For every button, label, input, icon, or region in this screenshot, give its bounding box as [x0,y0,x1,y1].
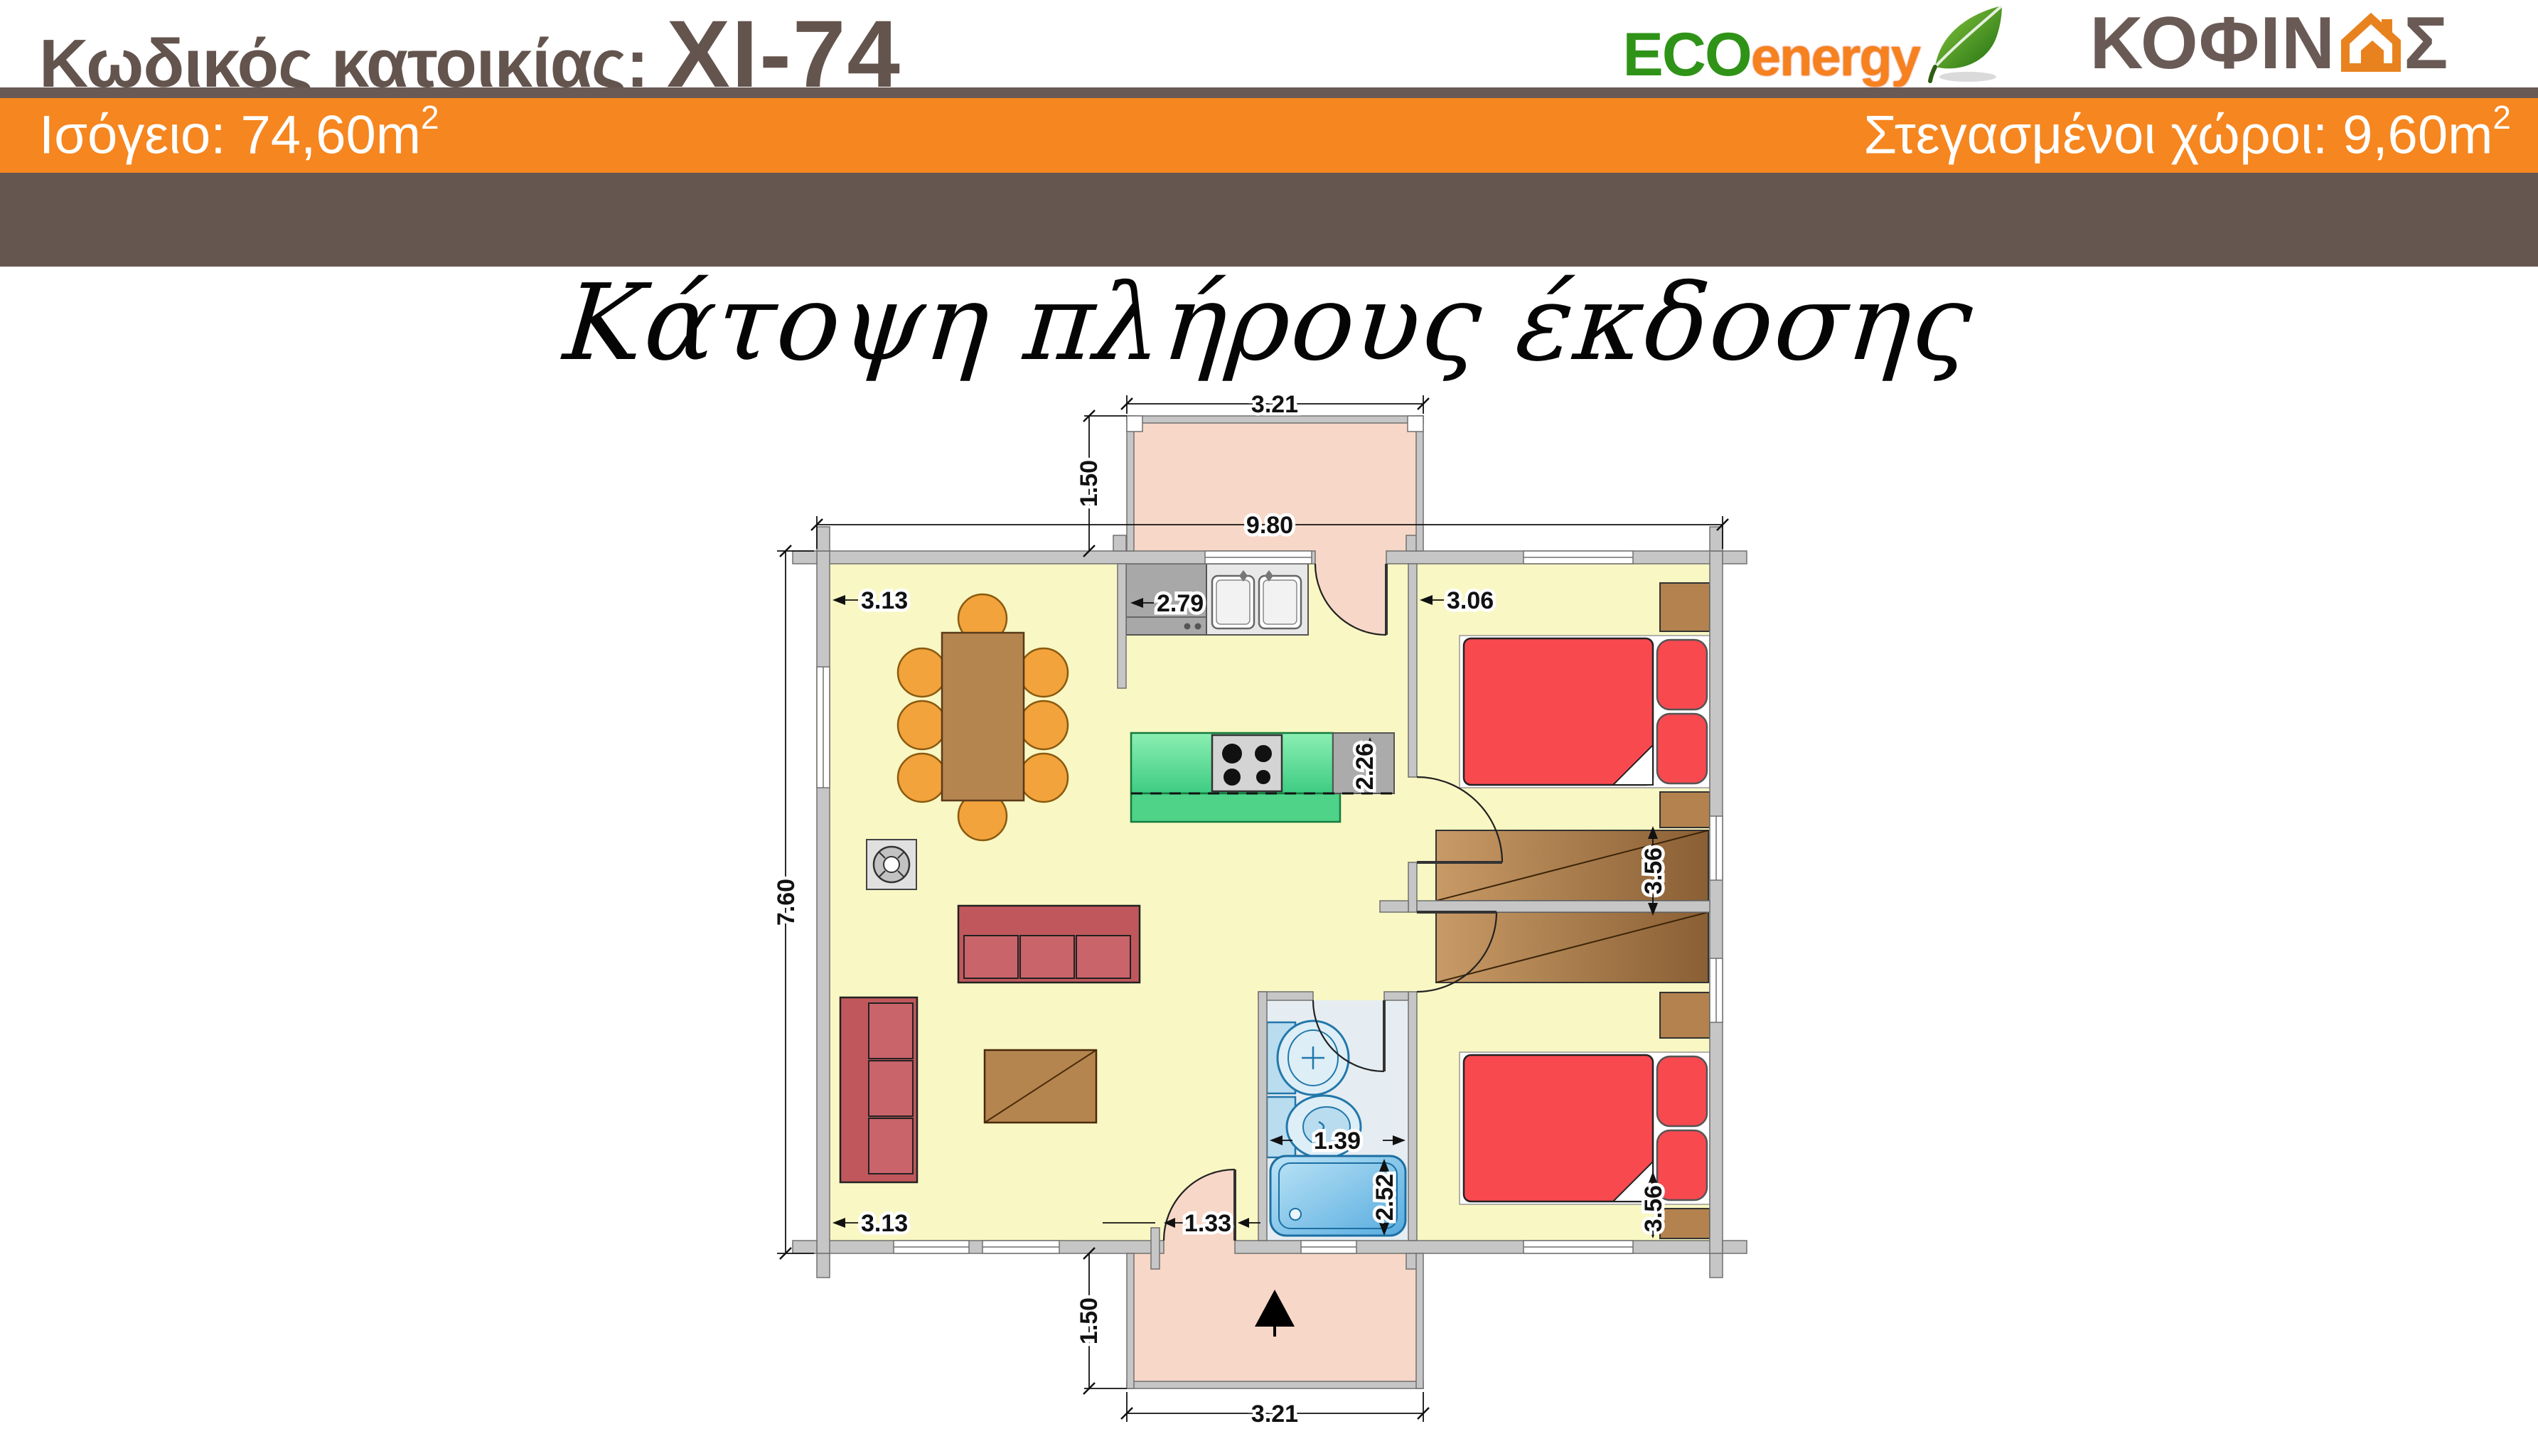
floor-plan: 3.21 1.50 9.80 7.60 3.13 3.13 2.79 3.06 … [771,390,1781,1429]
dim-living-bottom: 3.13 [861,1210,908,1237]
info-bar: Ισόγειο: 74,60m2 Στεγασμένοι χώροι: 9,60… [0,98,2538,173]
divider-stub [1380,901,1408,912]
hall-partition-mid [1408,862,1417,912]
drawing-title: Κάτοψη πλήρους έκδοσης [0,262,2538,384]
porch-top-wall-left [1127,416,1134,551]
dim-island-length: 2.26 [1351,743,1378,790]
eco-energy-logo: ECOenergy [1622,20,1919,90]
pillow [1657,1056,1707,1126]
bath-wall-left [1258,992,1267,1241]
brand-row: ΚΟΦΙΝ Σ [2090,1,2449,86]
house-icon [2334,6,2405,81]
stove-cooktop [1212,735,1282,791]
dim-porch-top-depth: 1.50 [1076,460,1103,507]
entry-top-gap [1315,551,1386,564]
dim-bath-depth: 2.52 [1371,1174,1398,1221]
dim-house-depth: 7.60 [773,879,800,926]
kitchen-stub-wall [1118,564,1126,688]
covered-area-text: Στεγασμένοι χώροι: 9,60m [1863,105,2493,165]
ground-floor-sup: 2 [421,99,439,136]
double-bed [1464,638,1653,785]
dim-living-top: 3.13 [861,587,908,614]
porch-post [1408,416,1423,432]
sofa-large [958,906,1140,983]
eco-text: ECO [1622,20,1750,90]
coffee-table [985,1050,1096,1123]
nightstand [1660,1209,1710,1238]
ground-floor-text: Ισόγειο: 74,60m [39,105,421,165]
porch-bottom-wall-left [1127,1253,1134,1388]
sofa-small [840,997,917,1182]
bedroom2-furniture [1436,912,1710,1238]
flyer-canvas: Κωδικός κατοικίας: XI-74 ECOenergy [0,0,2538,1456]
brand-prefix: ΚΟΦΙΝ [2090,1,2336,86]
porch-top-wall-right [1416,416,1423,551]
brown-band [0,173,2538,267]
dim-house-width: 9.80 [1246,512,1293,539]
energy-text: energy [1751,26,1919,88]
porch-bottom-wall-right [1416,1253,1423,1388]
dim-porch-bottom-depth: 1.50 [1076,1297,1103,1344]
covered-area-sup: 2 [2493,99,2511,136]
dim-bath-width: 1.39 [1314,1128,1361,1155]
dining-table [942,633,1024,801]
brand-suffix: Σ [2404,1,2448,86]
pillow [1657,714,1707,783]
hall-partition-bottom [1408,992,1417,1241]
dim-bedroom1-width: 3.06 [1447,587,1494,614]
hall-partition-top [1408,564,1417,777]
ground-floor-area: Ισόγειο: 74,60m2 [39,104,439,166]
separator-line [0,87,2538,98]
fireplace-stove [867,840,916,889]
dim-bedroom2-depth: 3.56 [1640,1185,1667,1232]
nightstand [1660,792,1710,828]
leaf-icon [1927,1,2010,90]
bath-wall-top-right [1384,992,1408,1000]
wall-left [817,551,830,1253]
dim-porch-bottom-width: 3.21 [1251,1401,1298,1428]
wall-right [1710,551,1723,1253]
page-title: Κωδικός κατοικίας: XI-74 [39,0,901,87]
covered-area: Στεγασμένοι χώροι: 9,60m2 [1863,104,2511,166]
bedroom-divider-wall [1417,901,1710,912]
dim-kitchen-wall: 2.79 [1157,590,1204,617]
entry-bottom-gap [1164,1241,1235,1253]
porch-post [1127,416,1142,432]
nightstand [1660,992,1710,1038]
pillow [1657,640,1707,710]
double-bed [1464,1055,1653,1201]
dim-porch-top-width: 3.21 [1251,391,1298,418]
dim-entry-width: 1.33 [1184,1210,1231,1237]
kitchen-sink [1206,564,1308,635]
porch-bottom-wall [1127,1381,1423,1388]
header: Κωδικός κατοικίας: XI-74 ECOenergy [0,0,2538,87]
nightstand [1660,583,1710,631]
dim-bedroom1-depth: 3.56 [1640,847,1667,894]
